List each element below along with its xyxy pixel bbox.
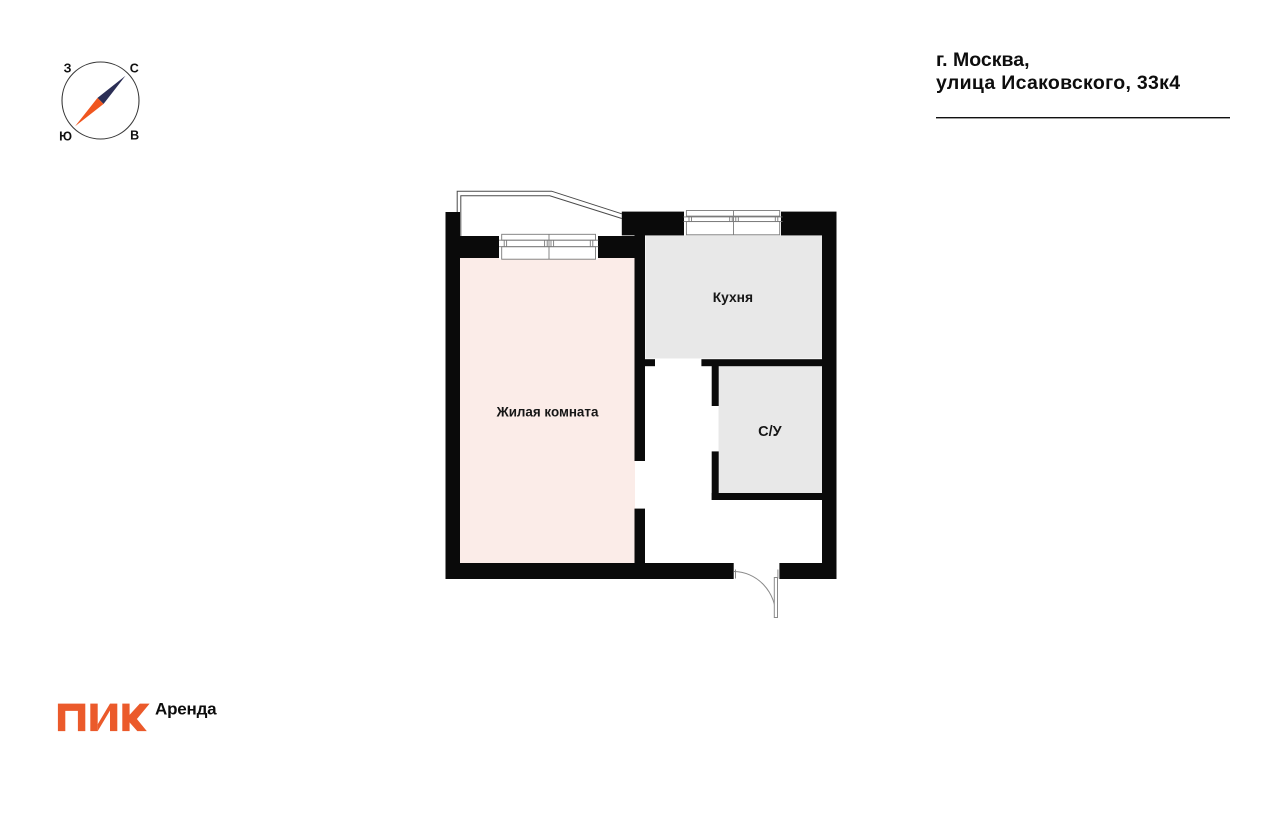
svg-text:г. Москва,: г. Москва,	[936, 49, 1030, 71]
svg-text:Жилая комната: Жилая комната	[496, 405, 599, 420]
svg-text:С: С	[130, 62, 139, 76]
svg-text:В: В	[130, 129, 139, 143]
svg-text:улица Исаковского, 33к4: улица Исаковского, 33к4	[936, 72, 1180, 94]
svg-text:Кухня: Кухня	[713, 290, 753, 305]
svg-text:Ю: Ю	[59, 129, 72, 143]
svg-text:З: З	[64, 62, 72, 76]
svg-text:С/У: С/У	[758, 424, 783, 440]
svg-text:Аренда: Аренда	[155, 700, 217, 719]
